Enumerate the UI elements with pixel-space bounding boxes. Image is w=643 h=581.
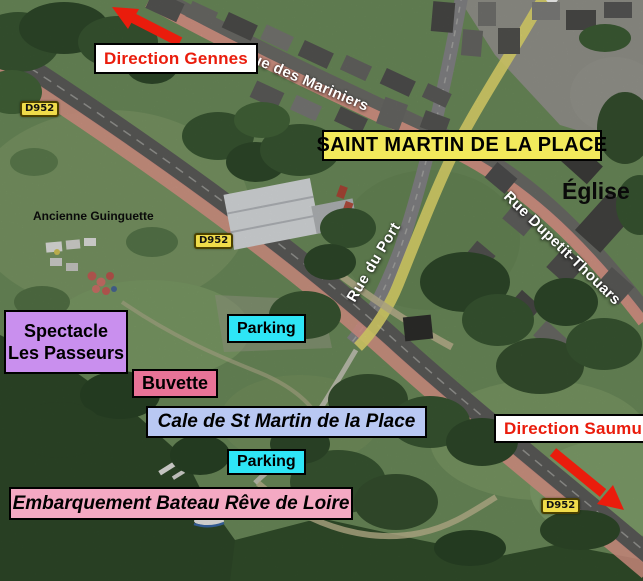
embarquement-label: Embarquement Bateau Rêve de Loire — [9, 487, 353, 520]
spectacle-line1: Spectacle — [24, 320, 108, 343]
spectacle-les-passeurs-label: Spectacle Les Passeurs — [4, 310, 128, 374]
cale-label: Cale de St Martin de la Place — [146, 406, 427, 438]
d952-badge-middle: D952 — [194, 233, 233, 249]
spectacle-line2: Les Passeurs — [8, 342, 124, 365]
annotated-satellite-map: Rue des Mariniers Rue du Port Rue Dupeti… — [0, 0, 643, 581]
buvette-label: Buvette — [132, 369, 218, 398]
parking-upper-label: Parking — [227, 314, 306, 343]
parking-lower-label: Parking — [227, 449, 306, 475]
direction-gennes-label: Direction Gennes — [94, 43, 258, 74]
town-name-label: SAINT MARTIN DE LA PLACE — [322, 130, 602, 161]
ancienne-guinguette-label: Ancienne Guinguette — [33, 209, 154, 223]
d952-badge-bottom: D952 — [541, 498, 580, 514]
direction-saumur-label: Direction Saumur — [494, 414, 643, 443]
eglise-label: Église — [562, 178, 630, 205]
d952-badge-top: D952 — [20, 101, 59, 117]
